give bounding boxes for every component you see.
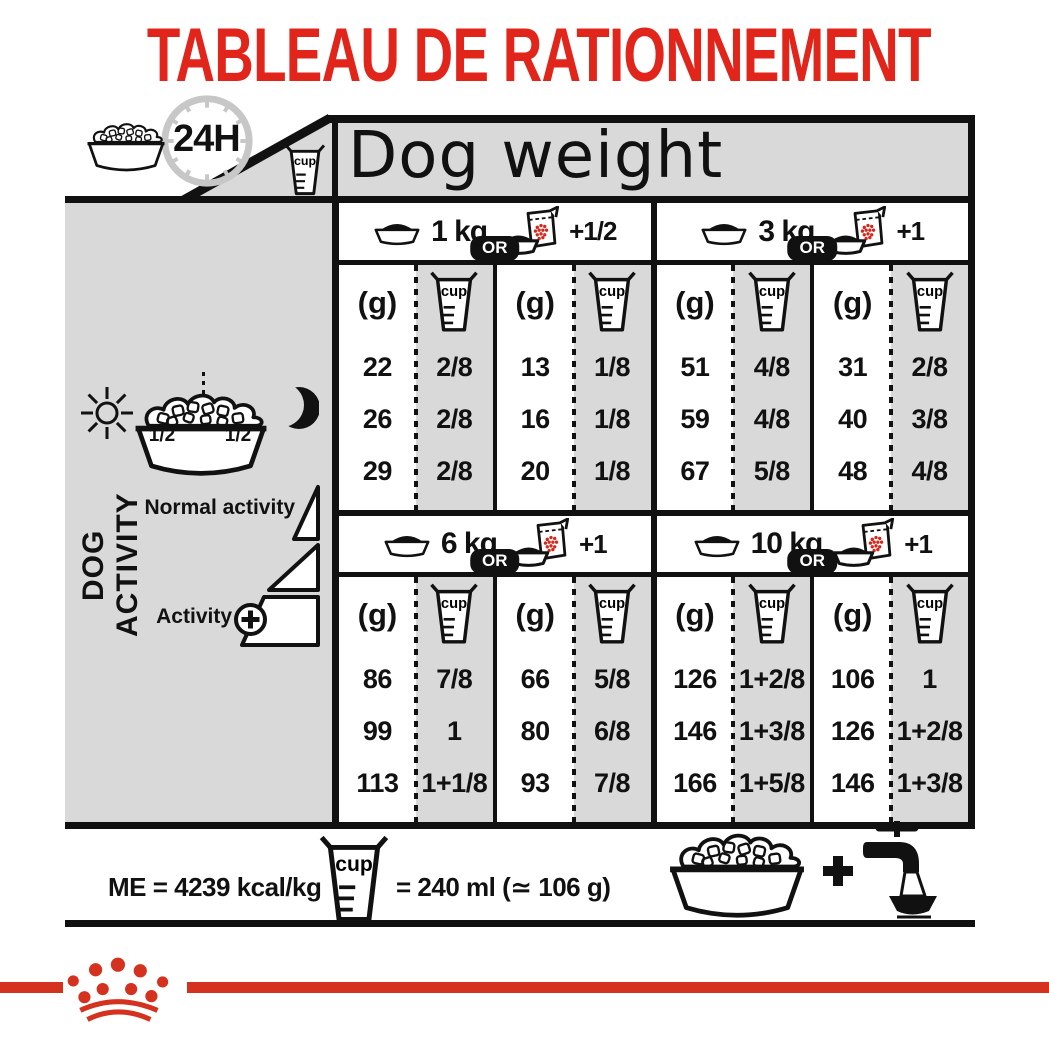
table-cell: 93: [497, 757, 574, 809]
cup-column: 1/8 1/8 1/8: [574, 265, 651, 510]
table-cell: 2/8: [416, 341, 493, 393]
rationing-table-page: cup: [0, 0, 1049, 1049]
grams-header: (g): [497, 577, 574, 653]
section-body-10kg: (g) 126 146 166 1+2/8 1+3/8 1+5/8 (g): [651, 577, 969, 822]
table-cell: 2/8: [891, 341, 968, 393]
table-cell: 1/8: [574, 341, 651, 393]
section-header-10kg: 10 kg +1 OR: [651, 516, 969, 572]
grams-column: (g) 13 16 20: [497, 265, 574, 510]
table-cell: 1+5/8: [733, 757, 810, 809]
measuring-cup-icon: [428, 271, 480, 335]
food-bowl-icon: [82, 122, 170, 174]
grams-header: (g): [339, 265, 416, 341]
table-cell: 4/8: [733, 393, 810, 445]
cup-column: 1+2/8 1+3/8 1+5/8: [733, 577, 810, 822]
cup-column: 2/8 3/8 4/8: [891, 265, 968, 510]
grams-column: (g) 106 126 146: [814, 577, 891, 822]
table-cell: 3/8: [891, 393, 968, 445]
table-cell: 20: [497, 445, 574, 497]
grams-column: (g) 31 40 48: [814, 265, 891, 510]
brand-line-right: [187, 982, 1049, 993]
measuring-cup-icon: [283, 144, 327, 198]
or-badge: OR: [788, 549, 838, 574]
table-cell: 13: [497, 341, 574, 393]
measuring-cup-icon: [428, 583, 480, 647]
divider-table-bottom: [65, 822, 975, 829]
divider-footer-bottom: [65, 920, 975, 927]
section-header-3kg: 3 kg +1 OR: [651, 203, 969, 260]
table-cell: 26: [339, 393, 416, 445]
pouch-bowl-icon: [832, 518, 894, 570]
table-cell: 146: [657, 705, 734, 757]
measuring-cup-icon: [746, 583, 798, 647]
pouch-alt-label: +1/2: [569, 216, 616, 247]
section-body-6kg: (g) 86 99 113 7/8 1 1+1/8 (g): [339, 577, 651, 822]
metabolizable-energy-label: ME = 4239 kcal/kg: [108, 872, 321, 903]
or-badge: OR: [788, 236, 838, 261]
moon-icon: [275, 384, 319, 432]
table-cell: 31: [814, 341, 891, 393]
table-cell: 2/8: [416, 393, 493, 445]
table-cell: 86: [339, 653, 416, 705]
table-cell: 4/8: [891, 445, 968, 497]
table-cell: 1: [416, 705, 493, 757]
half-left-label: 1/2: [142, 425, 182, 447]
weight-header-row-bottom: 6 kg +1 OR 10 kg +1 OR: [339, 510, 968, 577]
crown-logo-icon: [56, 946, 190, 1026]
cup-column: 2/8 2/8 2/8: [416, 265, 493, 510]
page-title: TABLEAU DE RATIONNEMENT: [147, 20, 902, 92]
pouch-alt-label: +1: [896, 216, 924, 247]
table-cell: 16: [497, 393, 574, 445]
table-cell: 1+2/8: [891, 705, 968, 757]
table-cell: 4/8: [733, 341, 810, 393]
or-badge: OR: [470, 236, 520, 261]
cup-column: 1 1+2/8 1+3/8: [891, 577, 968, 822]
cup-column: 7/8 1 1+1/8: [416, 577, 493, 822]
dog-activity-sidebar: 1/2 1/2 DOG ACTIVITY Normal activity Act…: [65, 203, 332, 822]
measuring-cup-icon: [904, 271, 956, 335]
divider-top: [65, 196, 975, 203]
or-badge: OR: [470, 549, 520, 574]
measuring-cup-icon: [746, 271, 798, 335]
table-cell: 5/8: [733, 445, 810, 497]
grams-header: (g): [497, 265, 574, 341]
table-cell: 40: [814, 393, 891, 445]
grams-column: (g) 126 146 166: [657, 577, 734, 822]
tap-icon: [855, 820, 939, 920]
food-bowl-icon: [700, 218, 748, 246]
section-header-6kg: 6 kg +1 OR: [339, 516, 651, 572]
cup-column: 4/8 4/8 5/8: [733, 265, 810, 510]
ration-table: 1 kg +1/2 OR 3 kg +1 OR (g) 22 26: [332, 203, 975, 822]
cup-column: 5/8 6/8 7/8: [574, 577, 651, 822]
table-cell: 1+3/8: [733, 705, 810, 757]
table-cell: 5/8: [574, 653, 651, 705]
grams-column: (g) 22 26 29: [339, 265, 416, 510]
plus-icon: [820, 853, 856, 889]
pouch-alt-label: +1: [579, 529, 607, 560]
table-cell: 67: [657, 445, 734, 497]
table-cell: 126: [814, 705, 891, 757]
dog-activity-label: DOG ACTIVITY: [77, 477, 115, 653]
table-cell: 146: [814, 757, 891, 809]
food-bowl-icon: [373, 218, 421, 246]
measuring-cup-icon: [315, 835, 393, 927]
table-cell: 113: [339, 757, 416, 809]
table-cell: 106: [814, 653, 891, 705]
table-cell: 166: [657, 757, 734, 809]
grams-column: (g) 66 80 93: [497, 577, 574, 822]
table-cell: 59: [657, 393, 734, 445]
weight-header-row-top: 1 kg +1/2 OR 3 kg +1 OR: [339, 203, 968, 265]
table-cell: 126: [657, 653, 734, 705]
table-cell: 80: [497, 705, 574, 757]
table-cell: 22: [339, 341, 416, 393]
grams-header: (g): [657, 265, 734, 341]
table-cell: 1+3/8: [891, 757, 968, 809]
hours-label: 24H: [173, 118, 240, 161]
plus-circle-icon: [232, 601, 269, 638]
grams-header: (g): [339, 577, 416, 653]
table-cell: 1+2/8: [733, 653, 810, 705]
grams-header: (g): [814, 265, 891, 341]
grams-header: (g): [657, 577, 734, 653]
header-divider: [332, 115, 338, 203]
pouch-alt-label: +1: [904, 529, 932, 560]
table-cell: 7/8: [416, 653, 493, 705]
grams-column: (g) 51 59 67: [657, 265, 734, 510]
food-bowl-icon: [693, 530, 741, 558]
food-bowl-icon: [656, 833, 818, 921]
brand-line-left: [0, 982, 63, 993]
cup-equivalence-label: = 240 ml (≃ 106 g): [396, 872, 610, 903]
measuring-cup-icon: [586, 271, 638, 335]
table-cell: 1/8: [574, 445, 651, 497]
grams-header: (g): [814, 577, 891, 653]
table-cell: 1/8: [574, 393, 651, 445]
data-rows-top: (g) 22 26 29 2/8 2/8 2/8 (g): [339, 265, 968, 510]
section-body-1kg: (g) 22 26 29 2/8 2/8 2/8 (g): [339, 265, 651, 510]
activity-plus-label: Activity: [120, 605, 232, 629]
table-cell: 6/8: [574, 705, 651, 757]
table-cell: 48: [814, 445, 891, 497]
table-cell: 99: [339, 705, 416, 757]
table-cell: 66: [497, 653, 574, 705]
table-cell: 1+1/8: [416, 757, 493, 809]
food-bowl-icon: [383, 530, 431, 558]
measuring-cup-icon: [586, 583, 638, 647]
grams-column: (g) 86 99 113: [339, 577, 416, 822]
dog-weight-heading: Dog weight: [348, 124, 723, 188]
section-header-1kg: 1 kg +1/2 OR: [339, 203, 651, 260]
section-body-3kg: (g) 51 59 67 4/8 4/8 5/8 (g): [651, 265, 969, 510]
table-cell: 51: [657, 341, 734, 393]
half-right-label: 1/2: [218, 425, 258, 447]
table-cell: 2/8: [416, 445, 493, 497]
measuring-cup-icon: [904, 583, 956, 647]
data-rows-bottom: (g) 86 99 113 7/8 1 1+1/8 (g): [339, 577, 968, 822]
table-cell: 1: [891, 653, 968, 705]
table-cell: 7/8: [574, 757, 651, 809]
table-cell: 29: [339, 445, 416, 497]
